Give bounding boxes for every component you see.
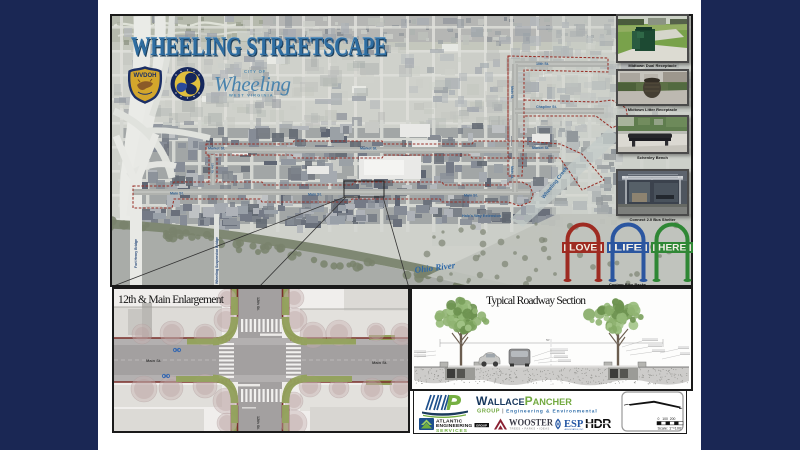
svg-text:Chapline St.: Chapline St. bbox=[536, 105, 557, 109]
svg-text:0 100 200: 0 100 200 bbox=[658, 417, 676, 421]
svg-text:HERE: HERE bbox=[658, 243, 686, 253]
svg-text:12th St.: 12th St. bbox=[211, 163, 215, 174]
svg-text:50': 50' bbox=[546, 338, 550, 342]
svg-text:Market St.: Market St. bbox=[208, 147, 225, 151]
svg-text:SERVICES: SERVICES bbox=[436, 428, 468, 432]
svg-text:WOOSTER: WOOSTER bbox=[509, 418, 553, 428]
svg-text:Main St.: Main St. bbox=[372, 360, 387, 365]
svg-text:WEST VIRGINIA: WEST VIRGINIA bbox=[229, 93, 274, 98]
svg-text:12th St.: 12th St. bbox=[256, 416, 260, 430]
svg-text:Market St.: Market St. bbox=[532, 146, 549, 150]
svg-text:12th St.: 12th St. bbox=[256, 297, 260, 311]
svg-text:TREES • PARKS • IDEAS: TREES • PARKS • IDEAS bbox=[510, 427, 550, 431]
svg-text:GROUP: GROUP bbox=[476, 423, 487, 427]
svg-text:Main St.: Main St. bbox=[510, 166, 514, 179]
svg-text:WALLACEPANCHER: WALLACEPANCHER bbox=[476, 394, 572, 408]
svg-text:10th St.: 10th St. bbox=[536, 62, 549, 66]
svg-text:LOVE: LOVE bbox=[569, 243, 597, 253]
svg-text:Main St.: Main St. bbox=[146, 358, 161, 363]
svg-text:ASSOCIATES, INC.: ASSOCIATES, INC. bbox=[565, 428, 585, 431]
svg-text:LIFE: LIFE bbox=[614, 243, 642, 253]
svg-text:Main St.: Main St. bbox=[170, 192, 184, 196]
svg-text:Scale: 1"=100': Scale: 1"=100' bbox=[658, 427, 683, 431]
svg-text:Main St.: Main St. bbox=[308, 193, 322, 197]
svg-text:Typical Roadway Section: Typical Roadway Section bbox=[486, 295, 586, 307]
svg-text:Main St.: Main St. bbox=[464, 194, 478, 198]
svg-text:GROUP | Engineering & Environm: GROUP | Engineering & Environmental bbox=[477, 409, 598, 415]
svg-text:Hale's Way Extension: Hale's Way Extension bbox=[462, 214, 502, 218]
svg-text:12th & Main Enlargement: 12th & Main Enlargement bbox=[118, 294, 225, 306]
svg-text:Fort Henry Bridge: Fort Henry Bridge bbox=[134, 239, 138, 268]
svg-text:WVDOH: WVDOH bbox=[134, 73, 157, 79]
svg-text:Wheeling Suspension Bridge: Wheeling Suspension Bridge bbox=[215, 237, 219, 284]
svg-text:Main St.: Main St. bbox=[510, 86, 514, 99]
svg-text:Market St.: Market St. bbox=[360, 147, 377, 151]
